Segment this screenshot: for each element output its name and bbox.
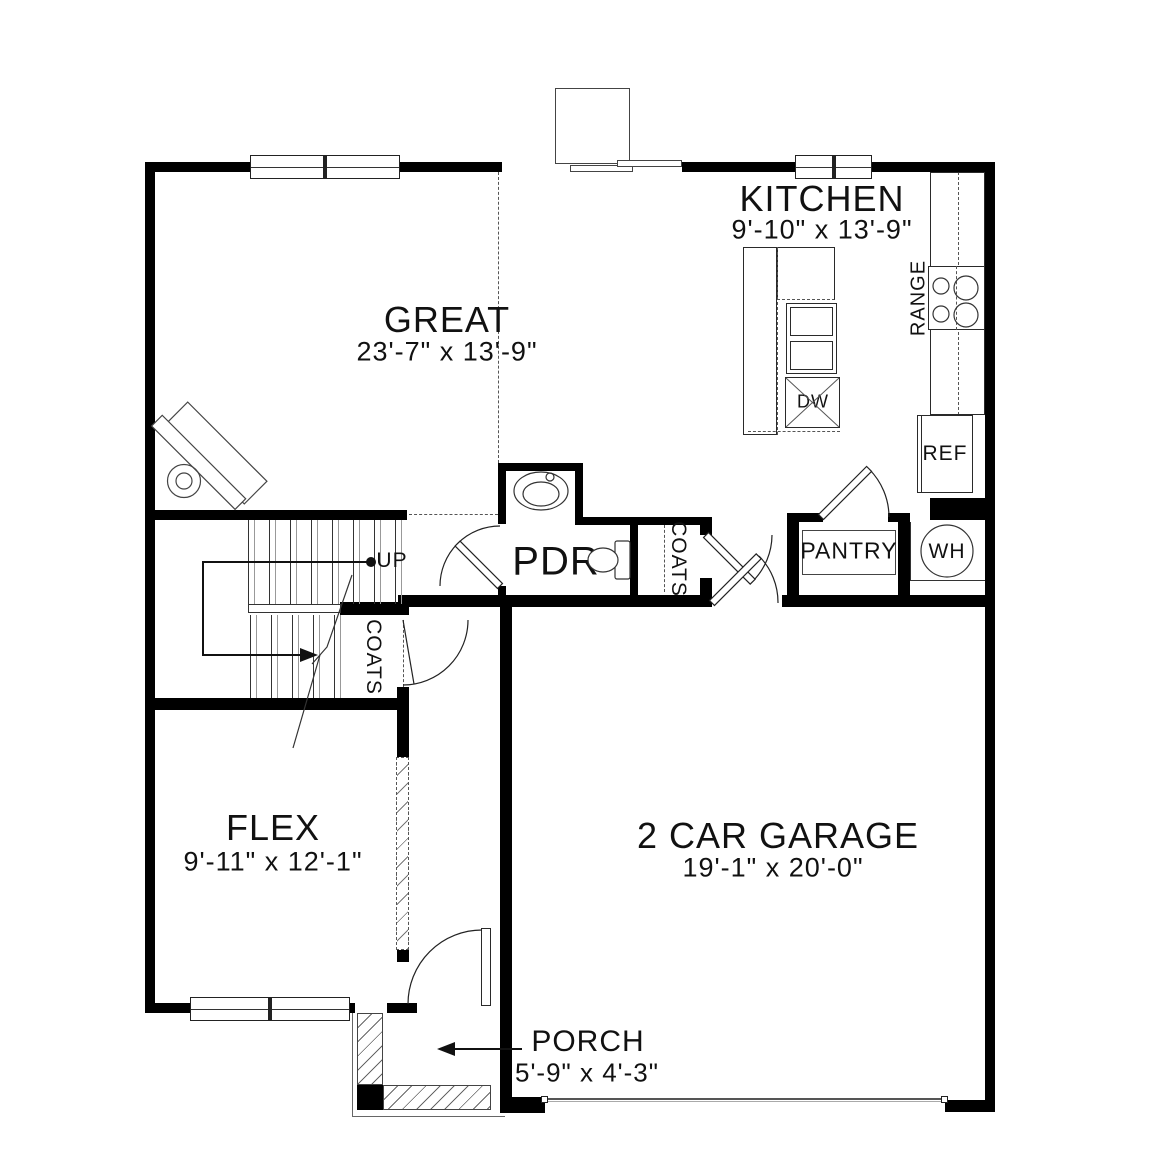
- wall-pdr-right-lower: [630, 517, 638, 600]
- garage-door-end-right: [941, 1096, 948, 1103]
- dashed-coats-stairs-door-opening: [403, 620, 404, 687]
- label-pantry: PANTRY: [800, 538, 897, 565]
- room-label-flex: FLEX: [226, 807, 320, 849]
- wall-stairs-top: [145, 510, 407, 520]
- room-label-garage: 2 CAR GARAGE: [637, 815, 919, 857]
- pdr-door: [440, 526, 502, 588]
- bumpout-box: [555, 88, 630, 164]
- wall-pdr-left-lower: [498, 586, 506, 600]
- island-overhang: [777, 247, 835, 300]
- dashed-coats-hall-depth: [664, 525, 665, 592]
- wall-pdr-top: [498, 463, 583, 471]
- wall-pdr-left-upper: [498, 463, 506, 524]
- wall-pantry-right: [898, 513, 910, 607]
- label-wh: WH: [929, 540, 966, 564]
- pdr-sink-icon: [514, 472, 568, 510]
- porch-column: [357, 1013, 383, 1085]
- fireplace-icon: [152, 402, 267, 509]
- wall-coats-hall-stub-bottom: [700, 578, 712, 607]
- stair-landing-bar: [248, 604, 341, 613]
- wall-garage-bottom-left-stub: [500, 1097, 545, 1113]
- room-dims-garage: 19'-1" x 20'-0": [682, 853, 863, 884]
- wall-coats-hall-stub-top: [700, 517, 712, 535]
- wall-right: [985, 162, 995, 1112]
- window-great: [250, 155, 400, 179]
- wall-pdr-right-upper: [575, 463, 583, 524]
- wall-pdr-step: [575, 517, 638, 525]
- wall-coats-stairs-right: [397, 687, 409, 757]
- dashed-range-center: [956, 266, 957, 330]
- window-kitchen: [795, 155, 872, 179]
- coats-stairs-door: [403, 620, 468, 685]
- garage-door-end-left: [541, 1096, 548, 1103]
- label-ref: REF: [923, 442, 968, 466]
- room-label-great: GREAT: [384, 299, 510, 341]
- wall-pantry-top-left-stub: [787, 513, 823, 522]
- wall-garage-top-east: [782, 595, 995, 607]
- wall-wh-top-block: [930, 498, 995, 520]
- wall-optional-stub: [397, 950, 409, 962]
- label-range: RANGE: [908, 260, 931, 336]
- dashed-stair-wall-extension: [409, 514, 498, 515]
- pantry-door: [819, 466, 889, 519]
- wall-pantry-left: [787, 513, 799, 607]
- room-label-pdr: PDR: [512, 540, 599, 585]
- label-dw: DW: [797, 392, 829, 413]
- window-flex: [190, 997, 350, 1021]
- room-dims-great: 23'-7" x 13'-9": [356, 337, 537, 368]
- front-door-swing: [408, 930, 482, 1004]
- garage-door: [545, 1098, 945, 1102]
- dashed-island-bottom: [748, 431, 840, 432]
- garage-entry-door: [710, 554, 778, 606]
- optional-wall-flex: [396, 757, 409, 950]
- porch-step: [383, 1085, 491, 1110]
- label-coats-stairs: COATS: [361, 619, 385, 695]
- stairs-lower-flight: [250, 615, 342, 698]
- wall-left: [145, 162, 155, 1013]
- label-coats-hall: COATS: [666, 521, 690, 597]
- room-dims-flex: 9'-11" x 12'-1": [183, 847, 362, 878]
- wall-garage-top-west: [398, 595, 712, 607]
- room-dims-porch: 5'-9" x 4'-3": [515, 1058, 659, 1089]
- wall-stairs-bottom: [145, 698, 409, 710]
- label-stairs-up: UP: [376, 549, 407, 573]
- sink-bowl-top: [790, 307, 833, 336]
- room-label-porch: PORCH: [531, 1025, 644, 1059]
- front-door-leaf: [481, 928, 491, 1006]
- room-dims-kitchen: 9'-10" x 13'-9": [731, 215, 912, 246]
- porch-column-footing: [357, 1085, 383, 1110]
- dashed-island-line: [777, 247, 778, 435]
- island-base: [743, 247, 777, 435]
- coats-hall-door: [704, 533, 772, 585]
- wall-garage-bottom-right-stub: [945, 1100, 995, 1112]
- floor-plan: GREAT 23'-7" x 13'-9" KITCHEN 9'-10" x 1…: [0, 0, 1150, 1170]
- bumpout-bar-upper: [617, 160, 682, 167]
- wall-foyer-bottom-stub: [387, 1003, 417, 1013]
- sink-bowl-bottom: [790, 341, 833, 370]
